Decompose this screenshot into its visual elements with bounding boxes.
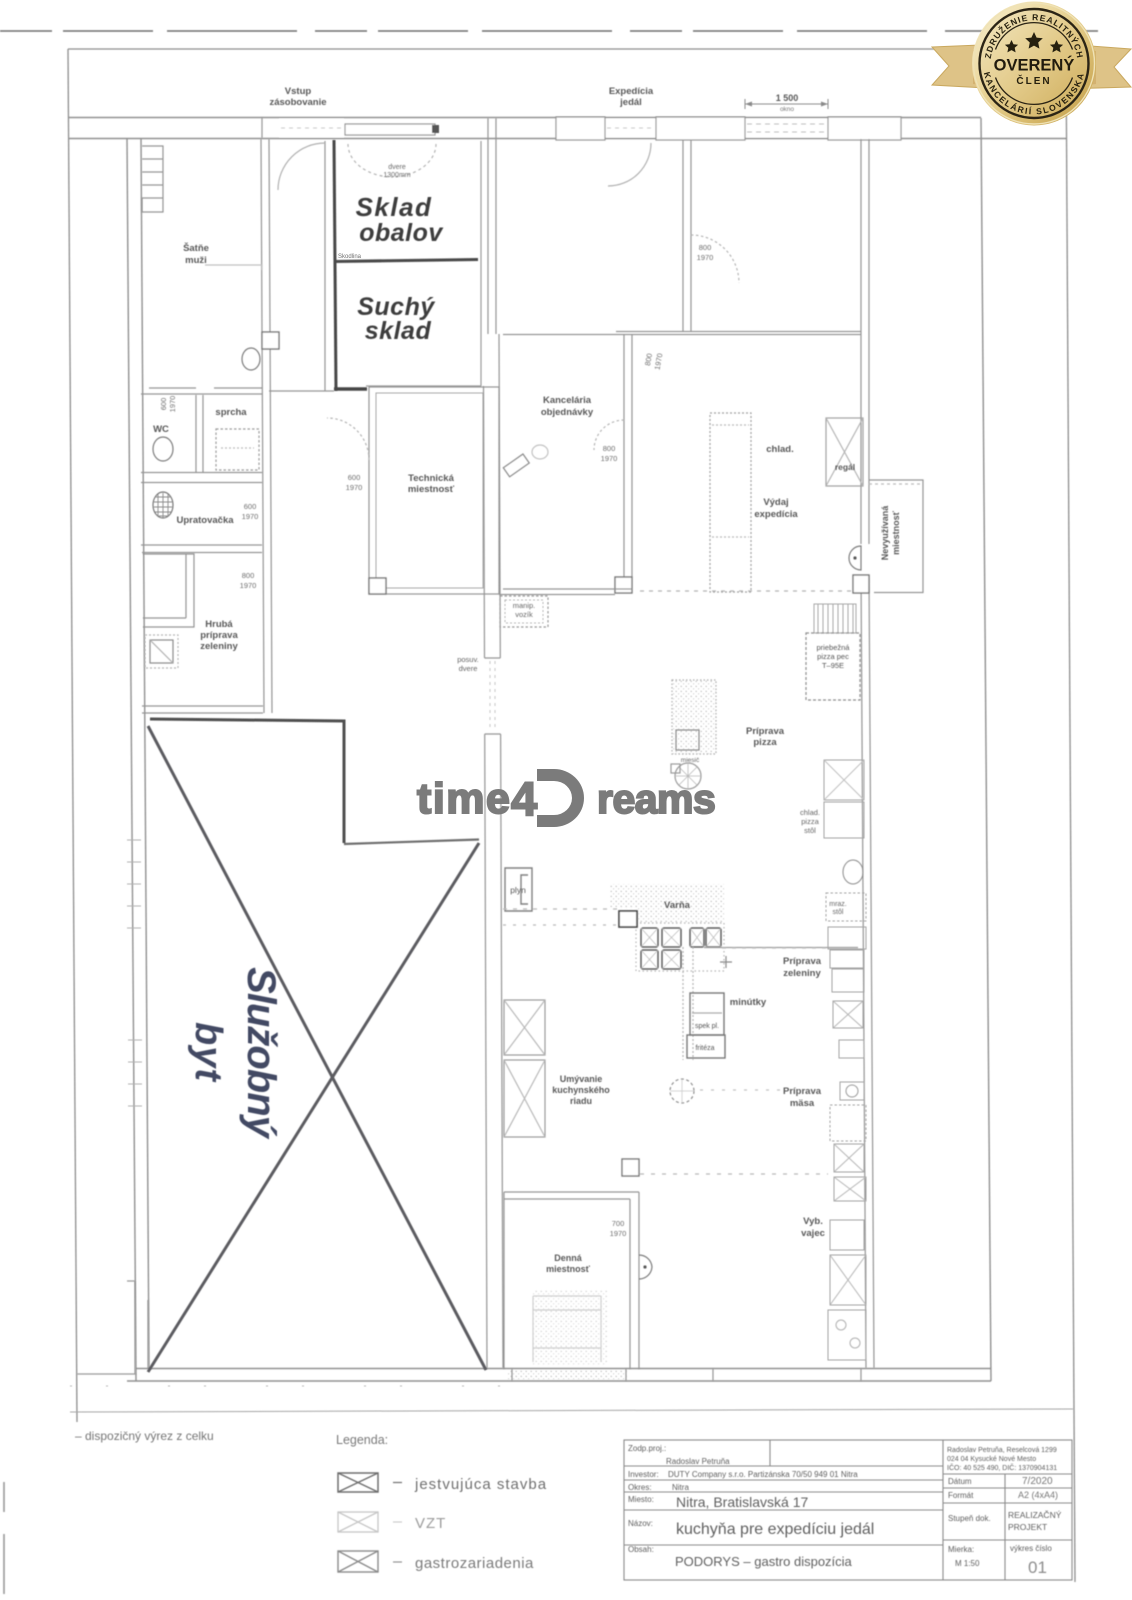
svg-text:sklad: sklad [365,317,432,345]
svg-text:– dispozičný výrez z celku: – dispozičný výrez z celku [75,1429,214,1443]
svg-text:1 500: 1 500 [776,93,799,103]
svg-text:1970: 1970 [610,1229,627,1238]
svg-text:7/2020: 7/2020 [1022,1476,1053,1487]
svg-text:4: 4 [511,772,537,825]
svg-text:objednávky: objednávky [541,407,594,418]
svg-text:800: 800 [242,571,255,580]
svg-text:Stupeň dok.: Stupeň dok. [948,1514,991,1523]
svg-text:Mierka:: Mierka: [948,1545,974,1554]
svg-text:Varňa: Varňa [664,900,691,911]
svg-text:fritéza: fritéza [695,1045,714,1052]
svg-text:Investor:: Investor: [628,1470,659,1479]
svg-text:jestvujúca stavba: jestvujúca stavba [414,1476,547,1493]
svg-text:Legenda:: Legenda: [336,1433,388,1447]
svg-text:1970: 1970 [242,512,259,521]
svg-text:Skodlina: Skodlina [338,254,362,260]
svg-text:1970: 1970 [697,253,714,262]
svg-text:time: time [417,775,511,823]
svg-text:Denná: Denná [554,1253,583,1263]
svg-text:PROJEKT: PROJEKT [1008,1522,1047,1532]
svg-text:1970: 1970 [601,454,618,463]
svg-text:Nevyužívaná: Nevyužívaná [880,505,890,561]
svg-text:700: 700 [612,1219,625,1228]
svg-text:vajec: vajec [801,1228,825,1239]
svg-text:800: 800 [699,243,712,252]
svg-text:gastrozariadenia: gastrozariadenia [415,1555,534,1572]
svg-text:príprava: príprava [200,630,238,641]
svg-text:1970: 1970 [346,483,363,492]
svg-text:1970: 1970 [240,581,257,590]
svg-text:Upratovačka: Upratovačka [176,515,234,526]
svg-text:Nitra: Nitra [672,1483,689,1492]
svg-text:jedál: jedál [619,97,642,108]
svg-text:spek pl.: spek pl. [695,1023,719,1030]
svg-text:T–95E: T–95E [822,661,844,670]
svg-text:muži: muži [185,255,207,266]
svg-text:Expedícia: Expedícia [609,86,654,97]
svg-text:A2 (4xA4): A2 (4xA4) [1018,1490,1058,1500]
svg-text:Zodp.proj.:: Zodp.proj.: [628,1444,666,1453]
svg-text:manip.: manip. [513,601,536,610]
svg-text:miestnosť: miestnosť [546,1264,591,1274]
svg-text:Obsah:: Obsah: [628,1545,654,1554]
svg-text:kuchynského: kuchynského [552,1085,610,1095]
svg-text:zásobovanie: zásobovanie [269,97,326,108]
svg-text:Dátum: Dátum [948,1477,972,1486]
svg-text:Kancelária: Kancelária [543,395,592,406]
svg-text:vozík: vozík [515,610,533,619]
svg-text:Formát: Formát [948,1491,974,1500]
svg-text:Služobný: Služobný [239,967,283,1140]
svg-text:01: 01 [1028,1558,1047,1577]
svg-text:regál: regál [835,462,855,472]
svg-text:reams: reams [597,776,715,822]
svg-text:Technická: Technická [408,473,454,484]
svg-text:miestnosť: miestnosť [891,510,901,555]
svg-text:sprcha: sprcha [215,407,247,418]
svg-text:pizza: pizza [801,817,819,826]
svg-text:miestnosť: miestnosť [408,484,455,495]
svg-text:Hrubá: Hrubá [205,619,233,630]
svg-text:800: 800 [603,444,616,453]
svg-text:priebežná: priebežná [817,643,851,652]
svg-text:1970: 1970 [168,396,177,413]
svg-text:Príprava: Príprava [783,1086,822,1097]
svg-text:Vyb.: Vyb. [803,1216,823,1227]
svg-text:IČO: 40 525 490, DIČ: 13709041: IČO: 40 525 490, DIČ: 1370904131 [947,1463,1057,1472]
svg-text:600: 600 [159,398,168,411]
svg-text:M 1:50: M 1:50 [955,1559,980,1568]
svg-text:pizza: pizza [753,737,777,748]
svg-text:zeleniny: zeleniny [200,641,238,652]
svg-text:okno: okno [780,106,794,113]
svg-text:expedícia: expedícia [754,509,798,520]
svg-text:Výdaj: Výdaj [763,497,788,508]
svg-text:mäsa: mäsa [790,1098,815,1109]
svg-text:DUTY Company s.r.o. Partizá: DUTY Company s.r.o. Partizánska 70/50 94… [668,1470,858,1479]
svg-text:REALIZAČNÝ: REALIZAČNÝ [1008,1510,1062,1520]
svg-text:riadu: riadu [570,1096,592,1106]
svg-text:pizza pec: pizza pec [817,652,849,661]
svg-text:kuchyňa pre expedíciu jedál: kuchyňa pre expedíciu jedál [676,1521,874,1538]
svg-text:Vstup: Vstup [285,86,312,97]
svg-text:Umývanie: Umývanie [560,1074,603,1084]
svg-text:Radoslav Petruňa, Reselcová 12: Radoslav Petruňa, Reselcová 1299 [947,1447,1057,1454]
svg-text:stôl: stôl [804,826,816,835]
svg-text:plyn: plyn [510,885,526,895]
svg-text:Názov:: Názov: [628,1519,653,1528]
svg-text:VZT: VZT [415,1515,446,1532]
svg-text:600: 600 [348,473,361,482]
svg-text:obalov: obalov [359,219,444,247]
svg-text:Šatňe: Šatňe [183,242,209,254]
svg-text:Príprava: Príprava [783,956,822,967]
svg-text:minútky: minútky [730,997,767,1008]
svg-text:Miesto:: Miesto: [628,1495,654,1504]
svg-text:chlad.: chlad. [800,808,820,817]
svg-text:ČLEN: ČLEN [1016,74,1051,87]
svg-text:posuv.: posuv. [457,655,479,664]
svg-text:PODORYS – gastro dispozícia: PODORYS – gastro dispozícia [675,1554,853,1569]
svg-text:Radoslav Petruňa: Radoslav Petruňa [666,1457,730,1466]
svg-text:WC: WC [153,424,169,435]
svg-text:Okres:: Okres: [628,1483,652,1492]
svg-text:mraz.: mraz. [829,901,847,908]
svg-text:600: 600 [244,502,257,511]
svg-text:Nitra, Bratislavská 17: Nitra, Bratislavská 17 [676,1494,808,1510]
svg-text:chlad.: chlad. [766,444,793,455]
svg-text:stôl: stôl [833,909,844,916]
svg-text:výkres číslo: výkres číslo [1010,1544,1052,1553]
svg-text:Sklad: Sklad [356,192,433,222]
svg-text:1300mm: 1300mm [383,172,410,179]
svg-text:OVERENÝ: OVERENÝ [994,56,1075,75]
svg-text:dvere: dvere [388,164,406,171]
svg-text:024 04 Kysucké Nové Mesto: 024 04 Kysucké Nové Mesto [947,1456,1036,1463]
svg-text:byt: byt [187,1022,229,1082]
svg-text:zeleniny: zeleniny [783,968,821,979]
svg-text:miesič: miesič [681,757,700,764]
svg-text:dvere: dvere [459,664,478,673]
svg-text:Príprava: Príprava [746,726,785,737]
